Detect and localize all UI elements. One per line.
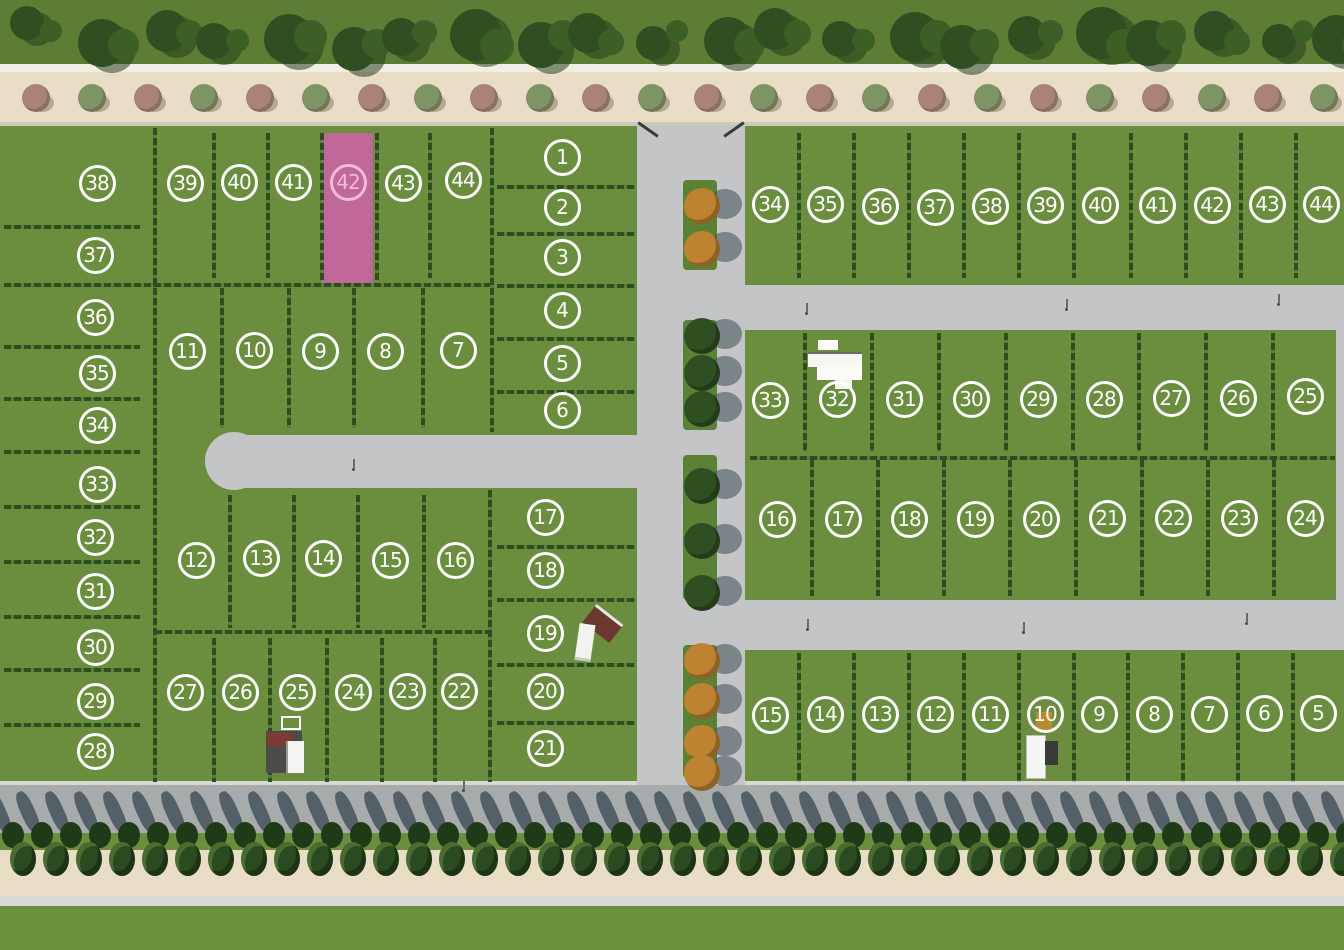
orange-tree-icon — [684, 755, 720, 791]
hedge-line — [228, 495, 232, 628]
conifer-tree-icon — [406, 842, 432, 876]
hedge-line — [1236, 653, 1240, 782]
cul-de-sac-road — [230, 435, 637, 488]
lot-marker-east-36[interactable]: 36 — [862, 188, 899, 225]
hedge-line — [1017, 133, 1021, 278]
hedge-line — [220, 288, 224, 428]
lot-marker-west-9[interactable]: 9 — [302, 333, 339, 370]
conifer-tree-icon — [802, 842, 828, 876]
conifer-tree-icon — [967, 842, 993, 876]
conifer-tree-icon — [1249, 822, 1271, 848]
lot-marker-west-32[interactable]: 32 — [77, 519, 114, 556]
hedge-line — [497, 598, 635, 602]
ornamental-tree-icon — [862, 84, 890, 112]
lot-marker-east-8[interactable]: 8 — [1136, 696, 1173, 733]
lot-marker-east-38[interactable]: 38 — [972, 188, 1009, 225]
lot-marker-east-31[interactable]: 31 — [886, 381, 923, 418]
conifer-tree-icon — [736, 842, 762, 876]
lot-marker-west-19[interactable]: 19 — [527, 615, 564, 652]
lot-marker-east-16[interactable]: 16 — [759, 501, 796, 538]
lot-marker-east-30[interactable]: 30 — [953, 381, 990, 418]
conifer-tree-icon — [901, 842, 927, 876]
ornamental-tree-icon — [974, 84, 1002, 112]
ornamental-tree-icon — [806, 84, 834, 112]
lot-marker-west-23[interactable]: 23 — [389, 673, 426, 710]
hedge-line — [1140, 460, 1144, 596]
lot-marker-west-42[interactable]: 42 — [330, 164, 367, 201]
hedge-line — [1291, 653, 1295, 782]
conifer-tree-icon — [505, 842, 531, 876]
lot-marker-east-24[interactable]: 24 — [1287, 500, 1324, 537]
ornamental-tree-icon — [1254, 84, 1282, 112]
ornamental-tree-icon — [190, 84, 218, 112]
tree-icon — [412, 20, 437, 45]
conifer-tree-icon — [1297, 842, 1323, 876]
hedge-line — [1129, 133, 1133, 278]
lot-marker-east-28[interactable]: 28 — [1086, 381, 1123, 418]
lamp-post-icon — [352, 468, 355, 471]
hedge-line — [422, 495, 426, 628]
lot-marker-west-35[interactable]: 35 — [79, 355, 116, 392]
lot-marker-west-34[interactable]: 34 — [79, 407, 116, 444]
lot-marker-east-21[interactable]: 21 — [1089, 500, 1126, 537]
conifer-tree-icon — [340, 842, 366, 876]
lamp-post-icon — [806, 628, 809, 631]
tree-icon — [666, 20, 688, 42]
hedge-line — [750, 456, 1335, 460]
lot-marker-east-14[interactable]: 14 — [807, 696, 844, 733]
conifer-tree-icon — [703, 842, 729, 876]
conifer-tree-icon — [109, 842, 135, 876]
green-tree-icon — [684, 355, 720, 391]
ornamental-tree-icon — [918, 84, 946, 112]
hedge-line — [852, 653, 856, 782]
hedge-line — [4, 505, 140, 509]
hedge-line — [907, 133, 911, 278]
lamp-post-icon — [1277, 303, 1280, 306]
hedge-line — [287, 288, 291, 428]
tree-icon — [1038, 20, 1063, 45]
hedge-line — [320, 133, 324, 280]
hedge-line — [852, 133, 856, 278]
lot-marker-east-10[interactable]: 10 — [1027, 696, 1064, 733]
orange-tree-icon — [684, 683, 720, 719]
lot-marker-west-27[interactable]: 27 — [167, 674, 204, 711]
tree-icon — [636, 26, 670, 60]
hedge-line — [4, 397, 140, 401]
cul-de-sac-turnaround — [205, 432, 263, 490]
lot-marker-west-40[interactable]: 40 — [221, 164, 258, 201]
hedge-line — [797, 653, 801, 782]
ornamental-tree-icon — [1198, 84, 1226, 112]
tree-icon — [1292, 20, 1314, 42]
conifer-tree-icon — [1033, 842, 1059, 876]
hedge-line — [292, 495, 296, 628]
lamp-post-icon — [1245, 622, 1248, 625]
lot-marker-east-43[interactable]: 43 — [1249, 186, 1286, 223]
east-edge-road — [1336, 285, 1344, 650]
lot-marker-east-23[interactable]: 23 — [1221, 500, 1258, 537]
lot-marker-west-10[interactable]: 10 — [236, 332, 273, 369]
lot-marker-west-24[interactable]: 24 — [335, 674, 372, 711]
lot-marker-east-33[interactable]: 33 — [752, 382, 789, 419]
green-tree-icon — [684, 523, 720, 559]
lot-marker-east-9[interactable]: 9 — [1081, 696, 1118, 733]
lot-marker-east-6[interactable]: 6 — [1246, 695, 1283, 732]
east-cross-road-north — [745, 285, 1344, 330]
lot-marker-west-26[interactable]: 26 — [222, 674, 259, 711]
tree-icon — [1262, 24, 1296, 58]
lot-marker-west-31[interactable]: 31 — [77, 573, 114, 610]
conifer-tree-icon — [208, 842, 234, 876]
green-tree-icon — [684, 468, 720, 504]
highlighted-plot-42[interactable] — [322, 133, 373, 283]
conifer-tree-icon — [175, 842, 201, 876]
lot-marker-east-25[interactable]: 25 — [1287, 378, 1324, 415]
tree-icon — [598, 29, 624, 55]
lot-marker-west-17[interactable]: 17 — [527, 499, 564, 536]
ornamental-tree-icon — [22, 84, 50, 112]
green-tree-icon — [684, 391, 720, 427]
hedge-line — [325, 638, 329, 782]
hedge-line — [1206, 460, 1210, 596]
green-tree-icon — [684, 318, 720, 354]
lot-marker-west-41[interactable]: 41 — [275, 164, 312, 201]
green-tree-icon — [684, 575, 720, 611]
lot-marker-east-26[interactable]: 26 — [1220, 380, 1257, 417]
ornamental-tree-icon — [1030, 84, 1058, 112]
hedge-line — [1294, 133, 1298, 278]
ornamental-tree-icon — [582, 84, 610, 112]
lot-marker-west-28[interactable]: 28 — [77, 733, 114, 770]
hedge-line — [1072, 133, 1076, 278]
hedge-line — [497, 337, 635, 341]
hedge-line — [1137, 333, 1141, 452]
hedge-line — [1004, 333, 1008, 452]
lot-marker-east-29[interactable]: 29 — [1020, 381, 1057, 418]
hedge-line — [1272, 460, 1276, 596]
hedge-line — [155, 630, 488, 634]
hedge-line — [352, 288, 356, 428]
lot-marker-east-13[interactable]: 13 — [862, 696, 899, 733]
hedge-line — [1184, 133, 1188, 278]
ornamental-tree-icon — [358, 84, 386, 112]
lamp-post-icon — [1065, 308, 1068, 311]
hedge-line — [1071, 333, 1075, 452]
conifer-tree-icon — [637, 842, 663, 876]
lot-marker-west-30[interactable]: 30 — [77, 629, 114, 666]
hedge-line — [907, 653, 911, 782]
tree-icon — [40, 20, 62, 42]
tree-icon — [1224, 29, 1250, 55]
lamp-post-icon — [1022, 631, 1025, 634]
conifer-tree-icon — [373, 842, 399, 876]
lot-marker-east-11[interactable]: 11 — [972, 696, 1009, 733]
hedge-line — [497, 545, 635, 549]
conifer-tree-icon — [604, 842, 630, 876]
lot-marker-west-15[interactable]: 15 — [372, 542, 409, 579]
hedge-line — [803, 333, 807, 452]
ornamental-tree-icon — [526, 84, 554, 112]
hedge-line — [810, 460, 814, 596]
conifer-tree-icon — [307, 842, 333, 876]
conifer-tree-icon — [670, 842, 696, 876]
lot-marker-west-18[interactable]: 18 — [527, 552, 564, 589]
lot-marker-west-38[interactable]: 38 — [79, 165, 116, 202]
hedge-line — [488, 490, 492, 782]
hedge-line — [153, 128, 157, 782]
conifer-tree-icon — [934, 842, 960, 876]
hedge-line — [497, 284, 635, 288]
conifer-tree-icon — [241, 842, 267, 876]
hedge-line — [4, 560, 140, 564]
lot-marker-east-12[interactable]: 12 — [917, 696, 954, 733]
conifer-tree-icon — [472, 842, 498, 876]
hedge-line — [433, 638, 437, 782]
conifer-tree-icon — [1231, 842, 1257, 876]
lot-marker-west-43[interactable]: 43 — [385, 165, 422, 202]
orange-tree-icon — [684, 231, 720, 267]
ornamental-tree-icon — [638, 84, 666, 112]
hedge-line — [1074, 460, 1078, 596]
hedge-line — [4, 345, 140, 349]
ornamental-tree-icon — [134, 84, 162, 112]
tree-icon — [294, 20, 327, 53]
site-plan-map: 3837363534333231302928394041424344123456… — [0, 0, 1344, 950]
hedge-line — [490, 128, 494, 432]
lot-marker-west-29[interactable]: 29 — [77, 683, 114, 720]
conifer-tree-icon — [76, 842, 102, 876]
hedge-line — [212, 133, 216, 278]
bottom-grass-strip — [0, 906, 1344, 950]
ornamental-tree-icon — [750, 84, 778, 112]
hedge-line — [4, 723, 140, 727]
lot-marker-west-11[interactable]: 11 — [169, 333, 206, 370]
lot-marker-west-25[interactable]: 25 — [279, 674, 316, 711]
hedge-line — [380, 638, 384, 782]
conifer-tree-icon — [292, 822, 314, 848]
lot-marker-west-1[interactable]: 1 — [544, 139, 581, 176]
lot-marker-east-32[interactable]: 32 — [819, 381, 856, 418]
hedge-line — [428, 133, 432, 278]
conifer-tree-icon — [1066, 842, 1092, 876]
lot-marker-west-8[interactable]: 8 — [367, 333, 404, 370]
hedge-line — [4, 450, 140, 454]
conifer-tree-icon — [10, 842, 36, 876]
conifer-tree-icon — [538, 842, 564, 876]
lot-marker-west-12[interactable]: 12 — [178, 542, 215, 579]
conifer-tree-icon — [1132, 842, 1158, 876]
conifer-tree-icon — [868, 842, 894, 876]
hedge-line — [497, 232, 635, 236]
conifer-tree-icon — [835, 842, 861, 876]
lot-marker-east-18[interactable]: 18 — [891, 501, 928, 538]
hedge-line — [4, 225, 140, 229]
lot-marker-east-42[interactable]: 42 — [1194, 187, 1231, 224]
hedge-line — [375, 133, 379, 280]
hedge-line — [962, 653, 966, 782]
lot-marker-east-7[interactable]: 7 — [1191, 696, 1228, 733]
conifer-tree-icon — [1198, 842, 1224, 876]
tree-icon — [480, 29, 514, 63]
conifer-tree-icon — [1000, 842, 1026, 876]
hedge-line — [356, 495, 360, 628]
lot-marker-east-19[interactable]: 19 — [957, 501, 994, 538]
ornamental-tree-icon — [694, 84, 722, 112]
lot-marker-east-44[interactable]: 44 — [1303, 186, 1340, 223]
lot-marker-west-36[interactable]: 36 — [77, 299, 114, 336]
conifer-tree-icon — [1165, 842, 1191, 876]
lot-marker-west-20[interactable]: 20 — [527, 673, 564, 710]
tree-icon — [970, 29, 999, 58]
hedge-line — [1271, 333, 1275, 452]
hedge-line — [942, 460, 946, 596]
hedge-line — [962, 133, 966, 278]
hedge-line — [1204, 333, 1208, 452]
hedge-line — [1008, 460, 1012, 596]
lot-marker-west-5[interactable]: 5 — [544, 345, 581, 382]
lot-marker-east-40[interactable]: 40 — [1082, 187, 1119, 224]
conifer-tree-icon — [571, 842, 597, 876]
lamp-post-icon — [462, 789, 465, 792]
lot-marker-west-6[interactable]: 6 — [544, 392, 581, 429]
conifer-tree-icon — [1099, 842, 1125, 876]
hedge-line — [1017, 653, 1021, 782]
hedge-line — [1239, 133, 1243, 278]
lot-marker-west-16[interactable]: 16 — [437, 542, 474, 579]
ornamental-tree-icon — [302, 84, 330, 112]
conifer-tree-icon — [142, 842, 168, 876]
conifer-tree-icon — [274, 842, 300, 876]
hedge-line — [1126, 653, 1130, 782]
tree-icon — [10, 6, 44, 40]
hedge-line — [1072, 653, 1076, 782]
east-cross-road-south — [745, 600, 1344, 650]
lot-marker-west-2[interactable]: 2 — [544, 189, 581, 226]
lot-marker-west-21[interactable]: 21 — [527, 730, 564, 767]
lot-marker-west-44[interactable]: 44 — [445, 162, 482, 199]
lot-marker-east-20[interactable]: 20 — [1023, 501, 1060, 538]
lot-marker-west-39[interactable]: 39 — [167, 165, 204, 202]
lot-marker-west-4[interactable]: 4 — [544, 292, 581, 329]
hedge-line — [937, 333, 941, 452]
orange-tree-icon — [684, 188, 720, 224]
lot-marker-west-37[interactable]: 37 — [77, 237, 114, 274]
hedge-line — [266, 133, 270, 278]
lot-marker-east-37[interactable]: 37 — [917, 189, 954, 226]
conifer-tree-icon — [1264, 842, 1290, 876]
ornamental-tree-icon — [1310, 84, 1338, 112]
hedge-line — [797, 133, 801, 278]
hedge-line — [497, 721, 635, 725]
lot-marker-east-22[interactable]: 22 — [1155, 500, 1192, 537]
hedge-line — [212, 638, 216, 782]
hedge-line — [421, 288, 425, 428]
lot-marker-east-34[interactable]: 34 — [752, 186, 789, 223]
lot-marker-east-41[interactable]: 41 — [1139, 187, 1176, 224]
lot-marker-west-13[interactable]: 13 — [243, 540, 280, 577]
orange-tree-icon — [684, 643, 720, 679]
conifer-tree-icon — [769, 842, 795, 876]
hedge-line — [497, 663, 635, 667]
conifer-tree-icon — [43, 842, 69, 876]
lot-marker-east-27[interactable]: 27 — [1153, 380, 1190, 417]
lot-marker-east-17[interactable]: 17 — [825, 501, 862, 538]
lot-marker-west-22[interactable]: 22 — [441, 673, 478, 710]
lot-marker-west-33[interactable]: 33 — [79, 466, 116, 503]
hedge-line — [1181, 653, 1185, 782]
lamp-post-icon — [805, 312, 808, 315]
hedge-line — [4, 283, 490, 287]
ornamental-tree-icon — [246, 84, 274, 112]
lot-marker-east-5[interactable]: 5 — [1300, 695, 1337, 732]
ornamental-tree-icon — [1086, 84, 1114, 112]
tree-icon — [1156, 20, 1186, 50]
ornamental-tree-icon — [1142, 84, 1170, 112]
hedge-line — [4, 615, 140, 619]
ornamental-tree-icon — [414, 84, 442, 112]
lot-marker-west-3[interactable]: 3 — [544, 239, 581, 276]
hedge-line — [870, 333, 874, 452]
lot-marker-west-7[interactable]: 7 — [440, 332, 477, 369]
lot-marker-east-15[interactable]: 15 — [752, 697, 789, 734]
ornamental-tree-icon — [78, 84, 106, 112]
hedge-line — [4, 668, 140, 672]
lot-marker-west-14[interactable]: 14 — [305, 540, 342, 577]
conifer-tree-icon — [439, 842, 465, 876]
ornamental-tree-icon — [470, 84, 498, 112]
hedge-line — [876, 460, 880, 596]
lot-marker-east-39[interactable]: 39 — [1027, 187, 1064, 224]
lot-marker-east-35[interactable]: 35 — [807, 186, 844, 223]
